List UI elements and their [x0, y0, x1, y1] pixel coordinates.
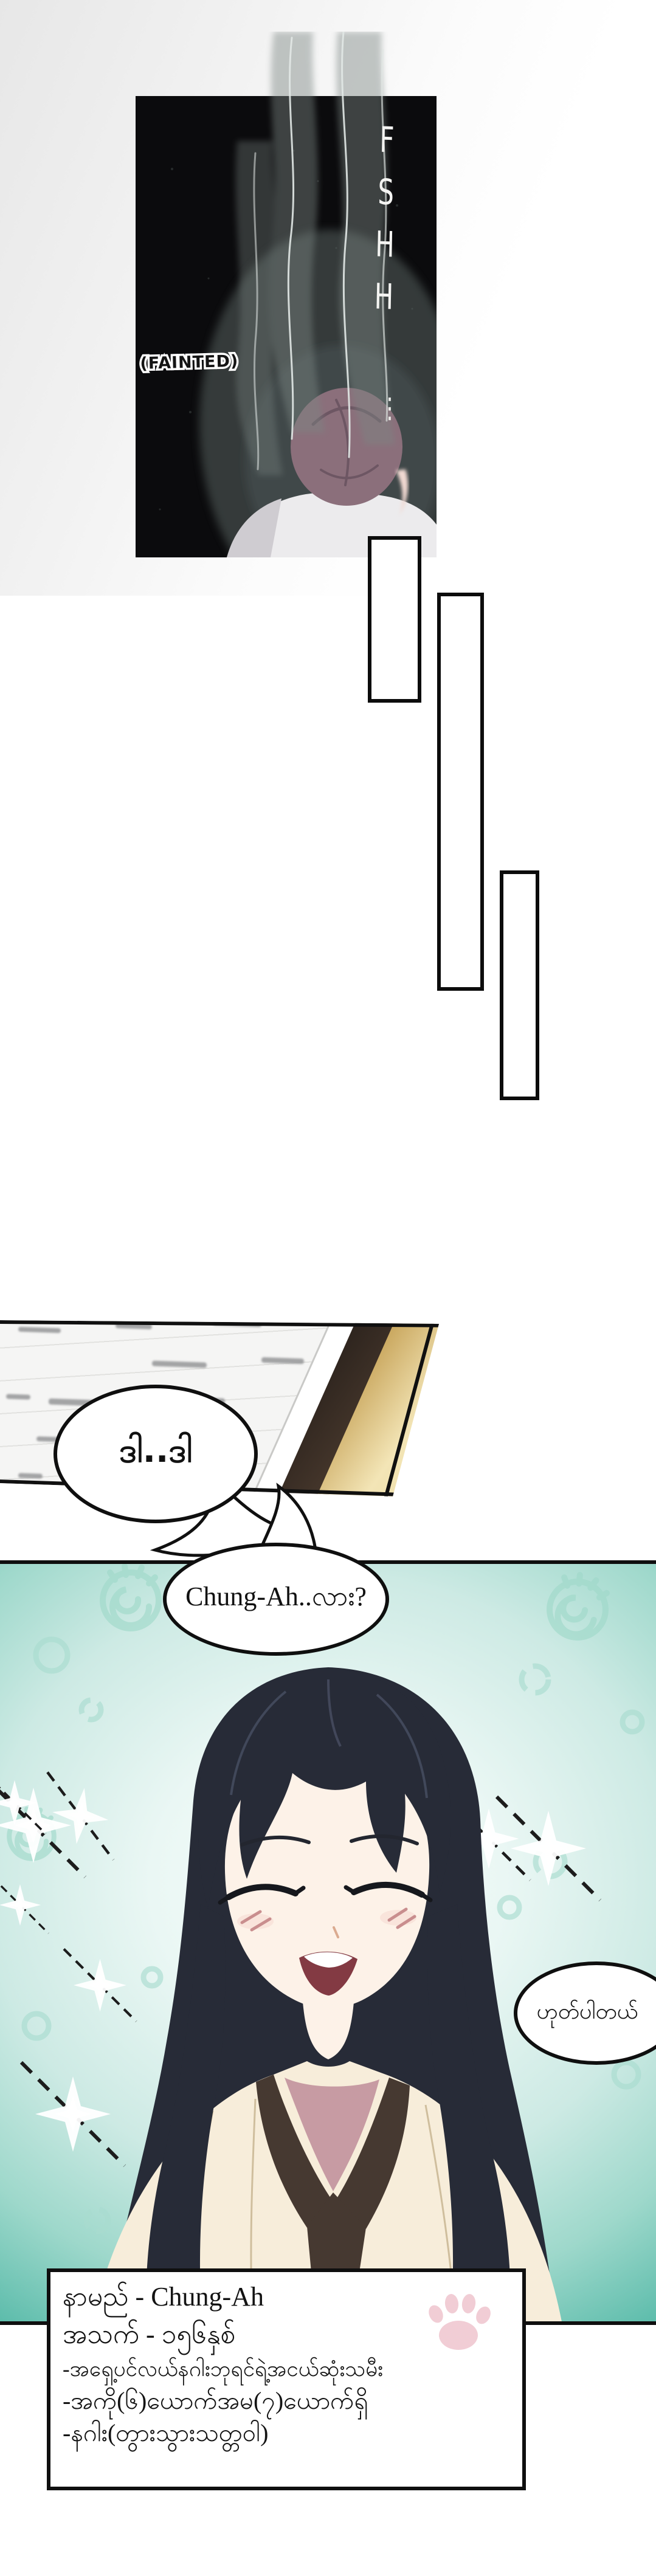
- paw-icon: [424, 2289, 497, 2356]
- profile-line-origin: -အရှေ့ပင်လယ်နဂါးဘုရင်ရဲ့အငယ်ဆုံးသမီး: [63, 2354, 522, 2385]
- bubble-2-text: Chung-Ah..လား?: [185, 1580, 367, 1619]
- stagger-rect-3: [500, 870, 539, 1100]
- sfx-fshh: FSHH: [369, 119, 402, 405]
- comic-page: FSHH ⋮ (FAINTED) (FAINTED) ဒါ..ဒါ: [0, 0, 656, 2576]
- sfx-fshh-trail: ⋮: [379, 394, 401, 422]
- illegible-writing: [6, 1394, 30, 1399]
- stagger-rect-1: [368, 536, 421, 703]
- bubble-3-text: ဟုတ်ပါတယ်: [536, 1997, 638, 2030]
- panel-chung-ah: ဟုတ်ပါတယ်: [0, 1560, 656, 2325]
- speech-bubble-1: ဒါ..ဒါ: [54, 1385, 258, 1523]
- profile-line-species: -နဂါး(တွားသွားသတ္တဝါ): [63, 2417, 522, 2450]
- stagger-rect-2: [437, 593, 484, 991]
- speech-bubble-2: Chung-Ah..လား?: [163, 1543, 389, 1656]
- chung-ah-figure: [0, 1564, 656, 2325]
- profile-line-siblings: -အကို(၆)ယောက်အမ(၇)ယောက်ရှိ: [63, 2385, 522, 2417]
- caption-fainted-text: (FAINTED): [140, 352, 239, 373]
- bubble-1-text: ဒါ..ဒါ: [119, 1429, 192, 1479]
- character-profile-box: နာမည် - Chung-Ah အသက် - ၁၅၆နှစ် -အရှေ့ပင…: [47, 2268, 526, 2490]
- illegible-writing: [18, 1473, 43, 1478]
